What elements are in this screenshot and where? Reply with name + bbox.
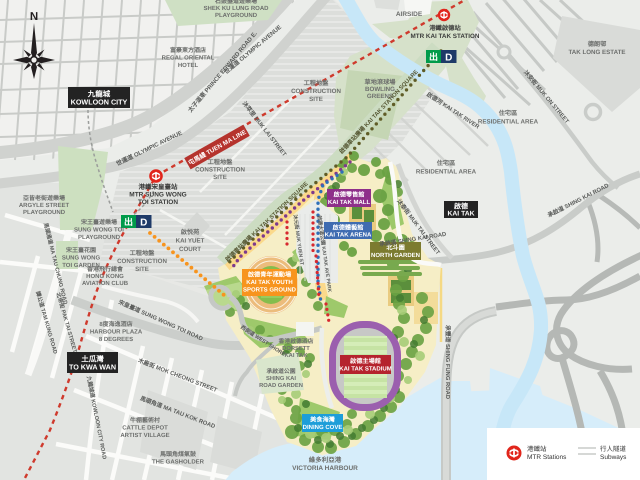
svg-text:SUNG WONG TOI: SUNG WONG TOI	[74, 227, 124, 234]
svg-text:KAI TAK YOUTH: KAI TAK YOUTH	[246, 279, 292, 286]
svg-text:AIRSIDE: AIRSIDE	[396, 11, 423, 18]
svg-text:KAI TAK MALL: KAI TAK MALL	[328, 199, 371, 206]
svg-text:石鼓壟道遊樂場: 石鼓壟道遊樂場	[214, 0, 257, 5]
svg-text:港鐵啟德站: 港鐵啟德站	[429, 24, 461, 32]
svg-text:KAI YUET: KAI YUET	[176, 238, 205, 245]
svg-text:ARGYLE STREET: ARGYLE STREET	[19, 202, 70, 209]
svg-text:啟德體藝館: 啟德體藝館	[333, 224, 364, 232]
svg-text:香港啟德酒店: 香港啟德酒店	[278, 337, 314, 345]
svg-text:CONSTRUCTION: CONSTRUCTION	[291, 88, 341, 95]
svg-text:出: 出	[124, 217, 133, 227]
svg-text:SHING KAI: SHING KAI	[266, 375, 296, 382]
svg-text:REGAL ORIENTAL: REGAL ORIENTAL	[162, 55, 215, 62]
svg-text:MTR SUNG WONG: MTR SUNG WONG	[129, 192, 186, 199]
svg-text:承啟道公園: 承啟道公園	[267, 367, 296, 375]
svg-text:美食海灣: 美食海灣	[309, 416, 336, 424]
svg-text:啟悦苑: 啟悦苑	[181, 228, 200, 236]
svg-text:KAI TAK STADIUM: KAI TAK STADIUM	[339, 366, 391, 373]
svg-text:牛棚藝術村: 牛棚藝術村	[130, 416, 160, 424]
svg-text:宋王臺花園: 宋王臺花園	[65, 246, 96, 254]
svg-text:住宅區: 住宅區	[499, 109, 518, 117]
svg-text:啟德青年運動場: 啟德青年運動場	[248, 271, 292, 279]
svg-text:HARBOUR PLAZA: HARBOUR PLAZA	[90, 329, 143, 336]
svg-text:COURT: COURT	[179, 246, 201, 253]
svg-text:工程地盤: 工程地盤	[208, 158, 234, 166]
svg-text:Subways: Subways	[600, 454, 627, 461]
svg-text:HOTEL: HOTEL	[178, 62, 199, 69]
svg-text:承豐道 SHING FUNG ROAD: 承豐道 SHING FUNG ROAD	[444, 325, 452, 399]
svg-text:TOI STATION: TOI STATION	[138, 199, 178, 206]
svg-text:SUNG WONG: SUNG WONG	[62, 255, 101, 262]
svg-text:亞皆老街遊樂場: 亞皆老街遊樂場	[23, 194, 65, 202]
svg-text:香港飛行總會: 香港飛行總會	[86, 265, 124, 273]
svg-text:CONSTRUCTION: CONSTRUCTION	[117, 258, 167, 265]
svg-text:PLAYGROUND: PLAYGROUND	[78, 234, 121, 241]
svg-text:工程地盤: 工程地盤	[304, 79, 330, 87]
svg-text:TAK LONG ESTATE: TAK LONG ESTATE	[568, 49, 625, 56]
svg-text:RESIDENTIAL AREA: RESIDENTIAL AREA	[416, 169, 477, 176]
svg-text:BOWLING: BOWLING	[365, 86, 395, 93]
svg-text:啟德: 啟德	[454, 202, 468, 211]
svg-text:德朗邨: 德朗邨	[587, 40, 607, 48]
svg-text:RESIDENTIAL AREA: RESIDENTIAL AREA	[478, 119, 539, 126]
svg-text:NORTH GARDEN: NORTH GARDEN	[371, 252, 420, 259]
svg-text:住宅區: 住宅區	[437, 159, 456, 167]
svg-text:宋王臺遊樂場: 宋王臺遊樂場	[80, 218, 117, 226]
svg-text:SPORTS GROUND: SPORTS GROUND	[243, 287, 297, 294]
svg-text:啟德主場館: 啟德主場館	[350, 357, 381, 365]
svg-text:富豪東方酒店: 富豪東方酒店	[170, 46, 206, 54]
svg-text:THE GASHOLDER: THE GASHOLDER	[152, 459, 205, 466]
svg-text:ROAD GARDEN: ROAD GARDEN	[259, 382, 303, 389]
svg-text:TO KWA WAN: TO KWA WAN	[69, 363, 116, 372]
svg-text:8 DEGREES: 8 DEGREES	[99, 336, 133, 343]
svg-text:港鐵宋皇臺站: 港鐵宋皇臺站	[139, 183, 179, 191]
svg-text:MTR KAI TAK STATION: MTR KAI TAK STATION	[411, 33, 480, 40]
svg-text:SITE: SITE	[213, 174, 227, 181]
svg-text:啟德零售館: 啟德零售館	[334, 191, 365, 199]
svg-text:MTR Stations: MTR Stations	[527, 454, 567, 461]
svg-text:D: D	[140, 218, 147, 229]
svg-text:KAI TAK: KAI TAK	[284, 353, 308, 359]
svg-text:CONSTRUCTION: CONSTRUCTION	[195, 167, 245, 174]
svg-text:DORSETT: DORSETT	[282, 345, 310, 352]
svg-text:KAI TAK ARENA: KAI TAK ARENA	[325, 232, 372, 239]
svg-text:HONG KONG: HONG KONG	[86, 273, 124, 280]
svg-text:CATTLE DEPOT: CATTLE DEPOT	[122, 425, 168, 432]
svg-text:工程地盤: 工程地盤	[130, 249, 156, 257]
svg-text:N: N	[30, 11, 38, 23]
svg-text:PLAYGROUND: PLAYGROUND	[215, 12, 258, 19]
svg-text:港鐵站: 港鐵站	[527, 445, 547, 453]
svg-text:維多利亞港: 維多利亞港	[309, 456, 342, 464]
svg-text:KAI TAK: KAI TAK	[447, 211, 474, 218]
svg-text:SITE: SITE	[135, 266, 149, 273]
svg-text:草地滾球場: 草地滾球場	[365, 78, 397, 86]
svg-text:KOWLOON CITY: KOWLOON CITY	[71, 98, 128, 107]
svg-text:SITE: SITE	[309, 96, 323, 103]
svg-text:ARTIST VILLAGE: ARTIST VILLAGE	[120, 432, 169, 439]
svg-text:行人隧道: 行人隧道	[600, 445, 627, 453]
svg-text:SHEK KU LUNG ROAD: SHEK KU LUNG ROAD	[203, 5, 269, 12]
svg-text:出: 出	[429, 52, 438, 62]
svg-text:馬頭角煤氣鼓: 馬頭角煤氣鼓	[160, 450, 197, 458]
svg-text:D: D	[445, 53, 452, 64]
svg-text:DINING COVE: DINING COVE	[303, 424, 343, 431]
svg-text:VICTORIA HARBOUR: VICTORIA HARBOUR	[292, 465, 358, 472]
svg-text:8度海逸酒店: 8度海逸酒店	[99, 320, 132, 328]
svg-text:AVIATION CLUB: AVIATION CLUB	[82, 280, 129, 287]
svg-text:PLAYGROUND: PLAYGROUND	[23, 209, 66, 216]
